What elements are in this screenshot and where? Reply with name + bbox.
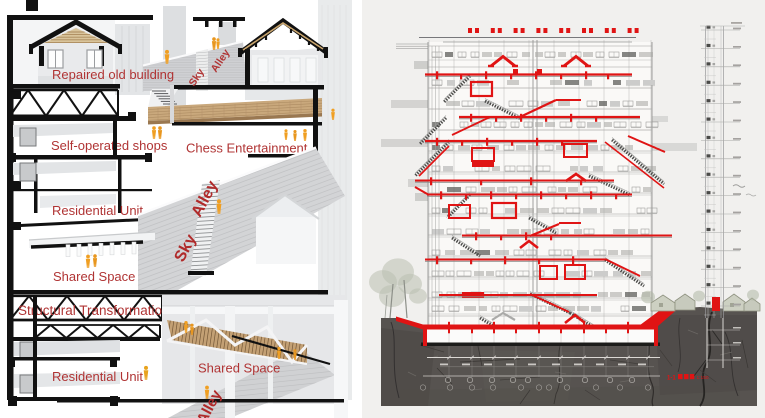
svg-text:Shared Space: Shared Space (198, 361, 280, 376)
svg-text:Chess Entertainment: Chess Entertainment (186, 141, 308, 156)
svg-text:1:150: 1:150 (697, 375, 709, 381)
svg-text:Residential Unit: Residential Unit (52, 203, 143, 218)
svg-text:Shared Space: Shared Space (53, 269, 135, 284)
svg-text:Repaired old building: Repaired old building (52, 67, 174, 82)
svg-text:Self-operated shops: Self-operated shops (51, 138, 168, 153)
svg-text:Structural Transformation: Structural Transformation (18, 303, 170, 318)
svg-text:Residential Unit: Residential Unit (52, 369, 143, 384)
svg-text:1-1: 1-1 (667, 376, 676, 382)
